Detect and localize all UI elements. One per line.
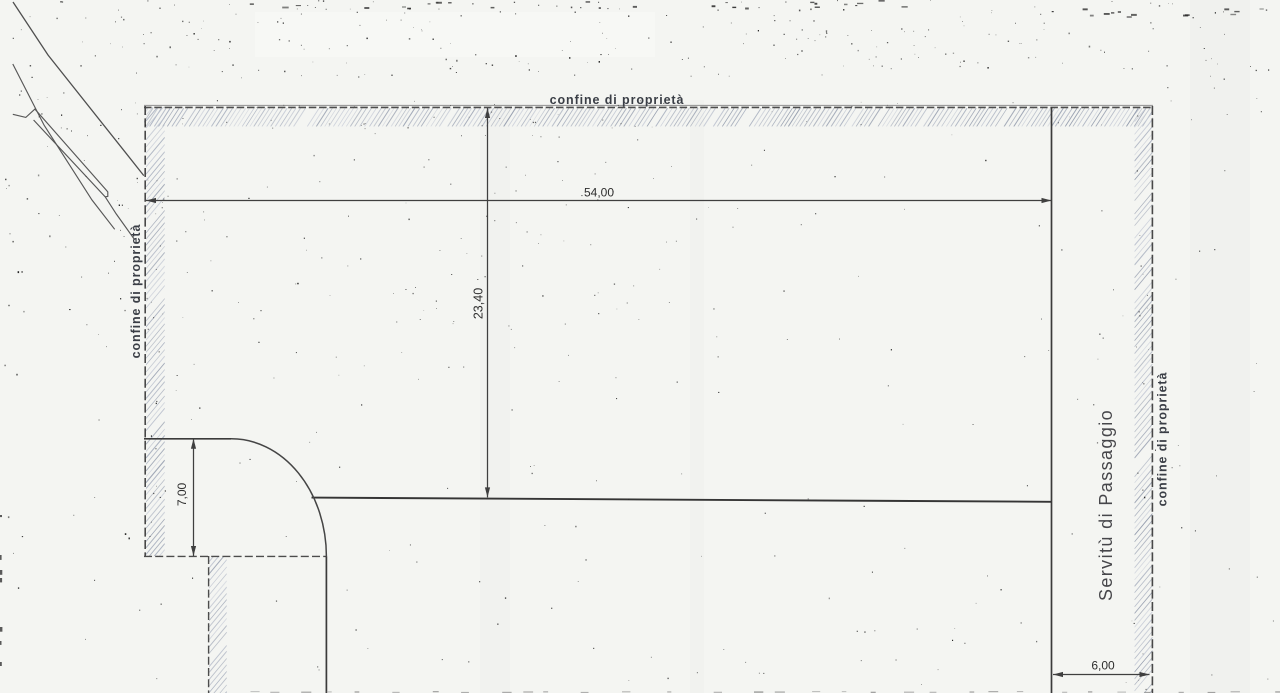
svg-text:23,40: 23,40 <box>472 288 486 319</box>
svg-text:confine di proprietà: confine di proprietà <box>1156 372 1170 507</box>
svg-text:Servitù di Passaggio: Servitù di Passaggio <box>1096 409 1116 601</box>
svg-text:confine di proprietà: confine di proprietà <box>550 93 685 107</box>
svg-text:6,00: 6,00 <box>1091 659 1115 673</box>
svg-text:54,00: 54,00 <box>584 186 614 200</box>
svg-text:7,00: 7,00 <box>175 482 189 506</box>
svg-text:confine di proprietà: confine di proprietà <box>129 224 143 359</box>
